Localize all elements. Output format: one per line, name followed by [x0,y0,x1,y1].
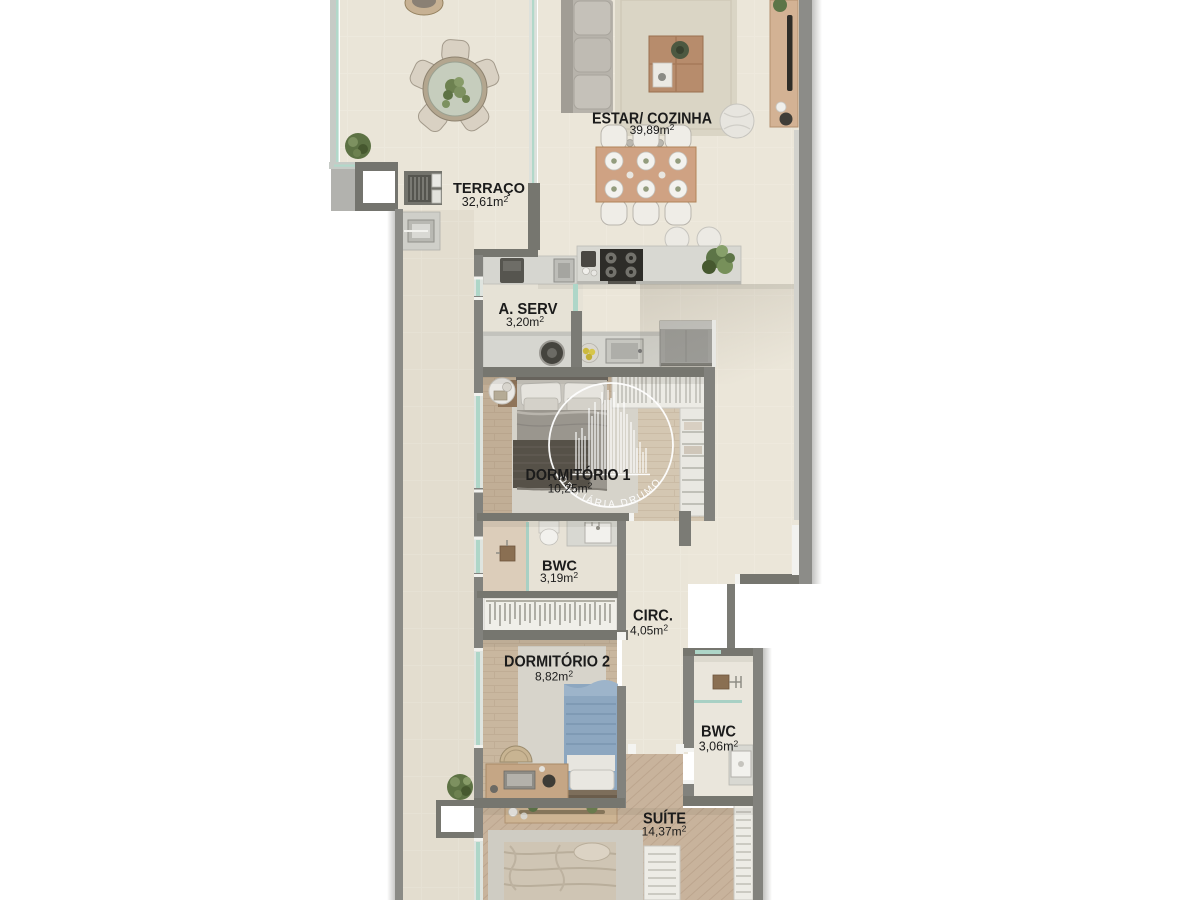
svg-text:3,19m2: 3,19m2 [540,570,578,585]
svg-text:DORMITÓRIO 2: DORMITÓRIO 2 [504,653,610,671]
svg-text:32,61m2: 32,61m2 [462,194,509,209]
svg-text:8,82m2: 8,82m2 [535,669,573,684]
svg-text:10,25m2: 10,25m2 [548,481,593,496]
svg-text:39,89m2: 39,89m2 [630,122,675,137]
svg-text:14,37m2: 14,37m2 [642,824,687,839]
svg-text:3,06m2: 3,06m2 [699,739,739,754]
svg-text:4,05m2: 4,05m2 [630,623,668,638]
svg-text:3,20m2: 3,20m2 [506,314,544,329]
svg-text:BWC: BWC [701,724,736,741]
